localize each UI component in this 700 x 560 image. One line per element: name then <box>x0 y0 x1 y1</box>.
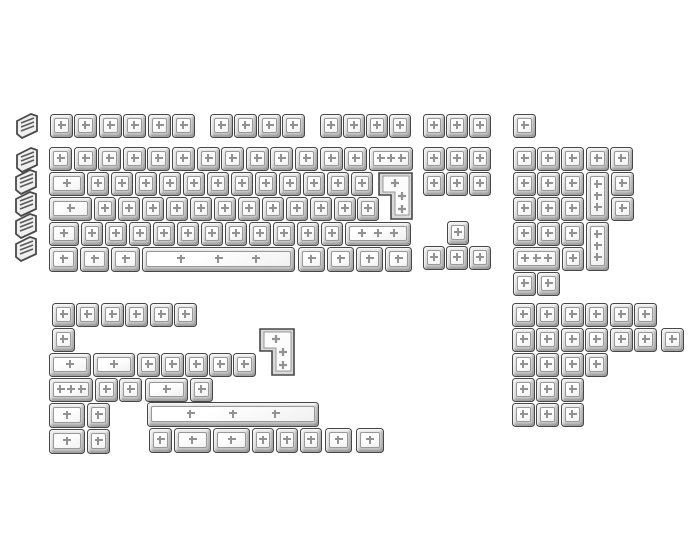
keycap-face <box>516 332 531 347</box>
stem-cross-icon <box>544 385 552 393</box>
keycap-face <box>565 382 580 397</box>
keycap <box>561 378 584 402</box>
extras-bottom-right <box>0 0 700 560</box>
keycap <box>561 328 584 352</box>
stem-cross-icon <box>669 335 677 343</box>
stem-cross-icon <box>520 410 528 418</box>
keycap <box>661 328 684 352</box>
keycap-face <box>516 382 531 397</box>
keycap <box>512 328 535 352</box>
keycap-face <box>665 332 680 347</box>
keycap-face <box>540 357 555 372</box>
stem-cross-icon <box>520 385 528 393</box>
keycap-face <box>565 357 580 372</box>
keycap-face <box>565 332 580 347</box>
keycap-face <box>540 307 555 322</box>
keycap-set-product-image <box>0 0 700 560</box>
stem-cross-icon <box>569 335 577 343</box>
stem-cross-icon <box>642 335 650 343</box>
keycap-face <box>516 357 531 372</box>
keycap <box>536 378 559 402</box>
keycap <box>536 328 559 352</box>
keycap-face <box>565 407 580 422</box>
stem-cross-icon <box>593 335 601 343</box>
keycap <box>536 353 559 377</box>
keycap <box>561 403 584 427</box>
keycap <box>536 303 559 327</box>
stem-cross-icon <box>618 310 626 318</box>
keycap-face <box>516 307 531 322</box>
keycap <box>512 378 535 402</box>
keycap-face <box>540 332 555 347</box>
stem-cross-icon <box>569 310 577 318</box>
keycap <box>585 328 608 352</box>
stem-cross-icon <box>544 360 552 368</box>
keycap <box>512 303 535 327</box>
keycap-face <box>614 332 629 347</box>
keycap <box>512 403 535 427</box>
keycap <box>610 303 633 327</box>
keycap <box>536 403 559 427</box>
stem-cross-icon <box>569 385 577 393</box>
stem-cross-icon <box>569 410 577 418</box>
keycap-face <box>589 332 604 347</box>
stem-cross-icon <box>520 335 528 343</box>
stem-cross-icon <box>520 360 528 368</box>
stem-cross-icon <box>544 410 552 418</box>
stem-cross-icon <box>642 310 650 318</box>
stem-cross-icon <box>593 310 601 318</box>
stem-cross-icon <box>544 335 552 343</box>
keycap-face <box>614 307 629 322</box>
keycap <box>634 328 657 352</box>
keycap-face <box>638 307 653 322</box>
stem-cross-icon <box>544 310 552 318</box>
keycap-face <box>638 332 653 347</box>
stem-cross-icon <box>569 360 577 368</box>
keycap <box>634 303 657 327</box>
keycap <box>561 353 584 377</box>
keycap <box>512 353 535 377</box>
keycap-face <box>540 407 555 422</box>
keycap-face <box>589 357 604 372</box>
keycap-face <box>589 307 604 322</box>
keycap <box>610 328 633 352</box>
stem-cross-icon <box>520 310 528 318</box>
keycap-face <box>540 382 555 397</box>
stem-cross-icon <box>618 335 626 343</box>
keycap-face <box>565 307 580 322</box>
keycap-face <box>516 407 531 422</box>
keycap <box>585 303 608 327</box>
stem-cross-icon <box>593 360 601 368</box>
keycap <box>561 303 584 327</box>
keycap <box>585 353 608 377</box>
